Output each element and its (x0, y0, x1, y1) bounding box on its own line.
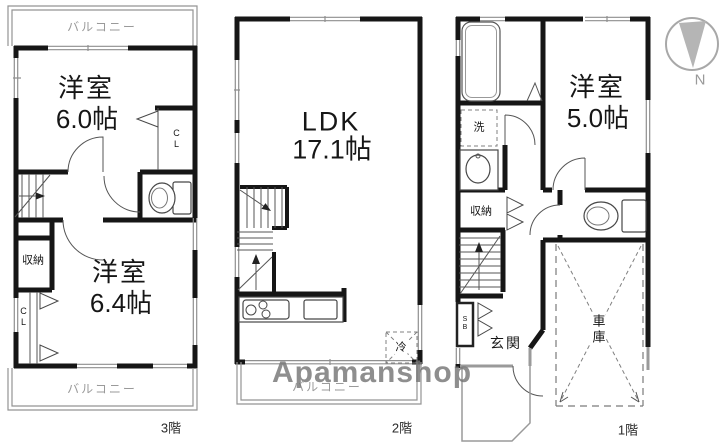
floor3-plan (8, 6, 197, 410)
storage-3f-label: 収納 (22, 256, 44, 267)
watermark-text: Apamanshop (272, 356, 472, 390)
sink (304, 300, 337, 319)
stairs-2f-up-arrow (252, 254, 260, 264)
ldk-size: 17.1帖 (292, 137, 372, 164)
balcony-3f-bottom-label: バルコニー (67, 383, 137, 395)
stairs-3f (15, 174, 50, 218)
floor1-label: 1階 (618, 424, 638, 437)
stairs-2f-down-arrow (262, 203, 272, 211)
storage-1f-label: 収納 (470, 207, 492, 218)
room-1f-name: 洋室 (569, 74, 625, 100)
storage-1f-doors (507, 197, 523, 230)
washbasin (460, 150, 498, 190)
closet-3f-upper-label: CL (172, 128, 181, 150)
stairs-3f-arrow (36, 193, 45, 200)
toilet-3f (149, 182, 191, 214)
room-3f-2-size: 6.4帖 (90, 290, 152, 316)
porch (462, 366, 530, 441)
kitchen-2f (239, 297, 343, 322)
room-3f-1-size: 6.0帖 (56, 106, 118, 132)
refrigerator-label: 冷 (395, 342, 408, 355)
stairs-1f-up-arrow (475, 242, 483, 252)
laundry-label: 洗 (473, 122, 486, 135)
closet-3f-upper (137, 108, 158, 170)
balcony-3f-top-label: バルコニー (67, 21, 137, 33)
bathtub (462, 22, 542, 101)
floorplan-canvas: バルコニー 洋室 6.0帖 CL 収納 CL 洋室 6.4帖 バルコニー 3階 … (0, 0, 720, 444)
stairs-1f (459, 236, 501, 294)
floor3-label: 3階 (161, 422, 181, 435)
bath-bifold-door (527, 83, 542, 101)
closet-3f-lower (30, 292, 58, 364)
closet-3f-lower-label: CL (19, 306, 28, 328)
toilet-1f (584, 200, 646, 232)
doors-3f (63, 137, 140, 260)
garage-label: 車庫 (591, 313, 606, 347)
room-3f-1-name: 洋室 (58, 75, 114, 101)
compass-north-label: N (695, 73, 706, 88)
floor2-label: 2階 (392, 422, 412, 435)
compass-icon (666, 18, 718, 70)
shoe-box-label: SB (462, 316, 469, 332)
entry-door-arc (513, 366, 543, 396)
ldk-name: LDK (302, 109, 361, 136)
room-1f-size: 5.0帖 (567, 105, 629, 131)
entrance-label: 玄関 (490, 336, 522, 350)
room-3f-2-name: 洋室 (92, 259, 148, 285)
